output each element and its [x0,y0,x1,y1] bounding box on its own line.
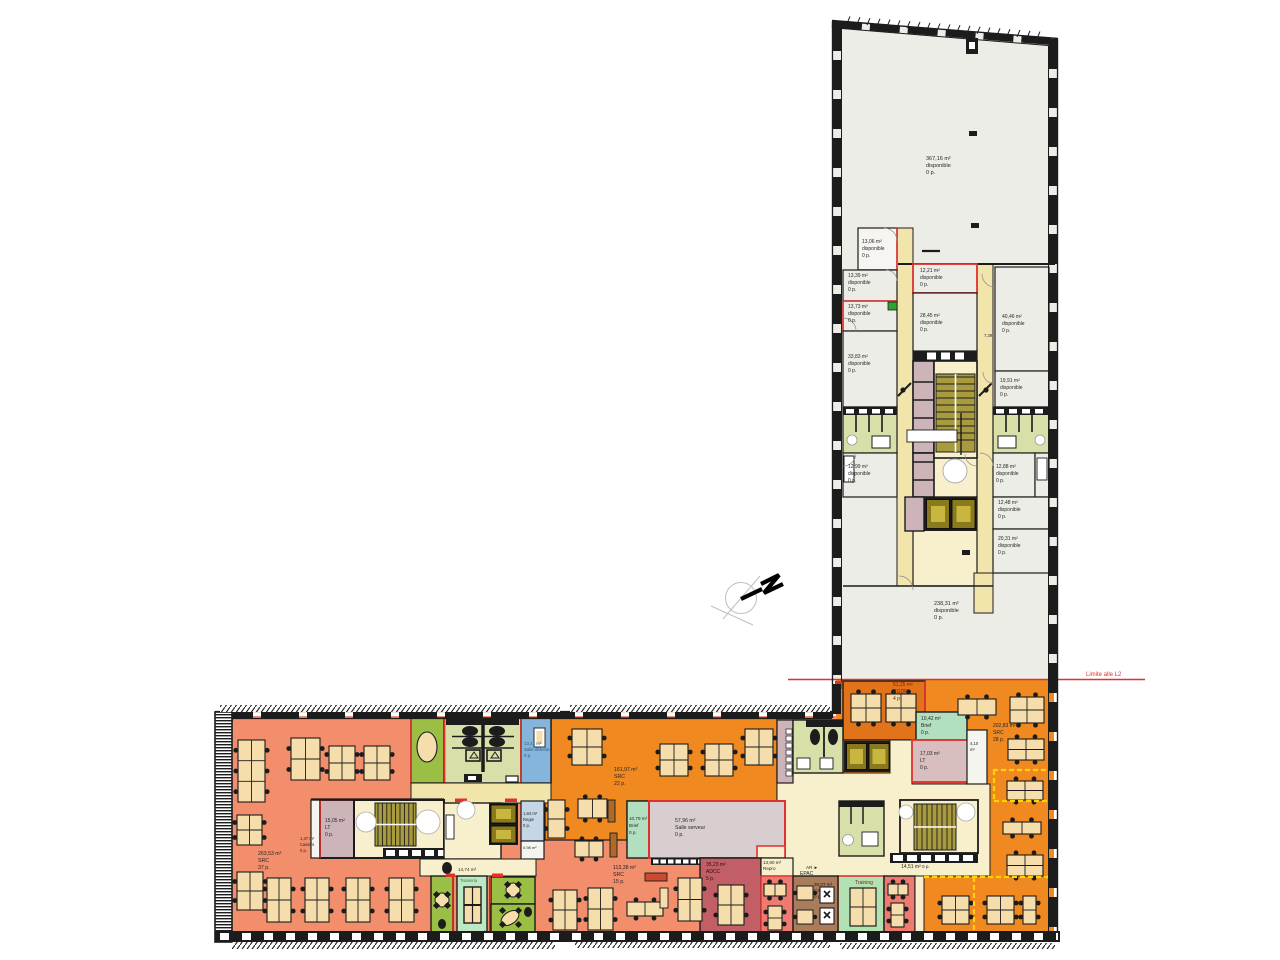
svg-text:263,53 m²: 263,53 m² [258,851,282,857]
svg-text:0 p.: 0 p. [300,848,307,853]
svg-text:Salle serveur: Salle serveur [675,825,706,831]
svg-text:13,73 m²: 13,73 m² [848,304,868,310]
svg-text:disponible: disponible [926,163,951,169]
svg-text:14,51 m²: 14,51 m² [901,864,921,870]
svg-text:15,05 m²: 15,05 m² [325,818,345,824]
svg-text:0 p.: 0 p. [920,765,928,771]
svg-text:1,84 m²: 1,84 m² [523,811,538,816]
svg-text:disponible: disponible [996,471,1019,477]
svg-text:367,16 m²: 367,16 m² [926,156,951,162]
svg-text:0,98 m²: 0,98 m² [523,845,537,850]
svg-text:Tisaneria: Tisaneria [460,878,478,883]
svg-text:disponible: disponible [848,471,871,477]
svg-text:33,83 m²: 33,83 m² [848,354,868,360]
svg-text:Limite alle L2: Limite alle L2 [1086,672,1122,678]
svg-text:Salle détente: Salle détente [524,747,550,752]
svg-text:28,45 m²: 28,45 m² [920,313,940,319]
svg-text:0 p.: 0 p. [926,170,936,176]
svg-text:0 p.: 0 p. [922,864,930,869]
svg-text:disponible: disponible [998,543,1021,549]
svg-text:12,21 m²: 12,21 m² [920,268,940,274]
svg-text:0 p.: 0 p. [848,478,856,484]
svg-text:LT: LT [920,758,925,764]
svg-text:0 p.: 0 p. [1000,392,1008,398]
svg-text:28 p.: 28 p. [993,737,1004,743]
svg-text:35,23 m²: 35,23 m² [706,862,726,868]
svg-text:13,90 m²: 13,90 m² [763,860,782,865]
svg-text:0 p.: 0 p. [629,830,637,835]
svg-text:13,06 m²: 13,06 m² [862,239,882,245]
svg-text:m²: m² [970,747,975,752]
svg-text:12,99 m²: 12,99 m² [848,464,868,470]
svg-text:0 p.: 0 p. [848,287,856,293]
svg-text:0 p.: 0 p. [921,730,929,736]
svg-text:0 p.: 0 p. [523,823,530,828]
svg-text:SRC: SRC [993,730,1004,736]
svg-text:238,31 m²: 238,31 m² [934,601,959,607]
svg-text:LT: LT [325,825,330,831]
svg-text:14,74 m²: 14,74 m² [458,867,477,872]
svg-text:4,10: 4,10 [970,741,979,746]
svg-text:10,79 m²: 10,79 m² [629,816,648,821]
svg-text:SRC: SRC [614,774,625,780]
svg-text:Repro: Repro [763,866,776,871]
svg-text:13,39 m²: 13,39 m² [848,273,868,279]
svg-text:17,03 m²: 17,03 m² [920,751,940,757]
svg-text:SRC: SRC [613,872,624,878]
svg-text:0 p.: 0 p. [1002,328,1010,334]
svg-text:disponible: disponible [934,608,959,614]
svg-text:disponible: disponible [1000,385,1023,391]
svg-text:22 p.: 22 p. [614,781,626,787]
svg-text:20,31 m²: 20,31 m² [998,536,1018,542]
svg-text:37 p.: 37 p. [258,865,270,871]
svg-text:SRC: SRC [258,858,269,864]
svg-text:1,37 m²: 1,37 m² [300,836,315,841]
svg-text:12,88 m²: 12,88 m² [996,464,1016,470]
svg-text:30,07 m²: 30,07 m² [814,882,833,887]
svg-text:13,41 m²: 13,41 m² [524,741,542,746]
svg-text:0 p.: 0 p. [998,514,1006,520]
svg-text:0 p.: 0 p. [848,318,856,324]
svg-text:0 p.: 0 p. [848,368,856,374]
svg-text:Brief: Brief [629,823,639,828]
svg-text:0 p.: 0 p. [998,550,1006,556]
svg-text:0 p.: 0 p. [920,327,928,333]
svg-text:disponible: disponible [1002,321,1025,327]
svg-text:ADCC: ADCC [706,869,721,875]
svg-text:12,48 m²: 12,48 m² [998,500,1018,506]
svg-text:0 p.: 0 p. [920,282,928,288]
svg-text:51,25 m²: 51,25 m² [893,682,913,688]
svg-text:disponible: disponible [920,320,943,326]
svg-text:4 p.: 4 p. [893,696,901,702]
svg-text:113,38 m²: 113,38 m² [613,865,636,871]
svg-text:0 p.: 0 p. [996,478,1004,484]
svg-text:202,83 m²: 202,83 m² [993,723,1016,729]
svg-text:disponible: disponible [848,361,871,367]
svg-text:disponible: disponible [862,246,885,252]
svg-text:0 p.: 0 p. [524,753,531,758]
svg-text:Training: Training [855,880,873,886]
svg-text:7,39: 7,39 [984,333,993,338]
svg-text:57,96 m²: 57,96 m² [675,818,696,824]
svg-text:disponible: disponible [920,275,943,281]
svg-text:5 p.: 5 p. [706,876,714,882]
svg-text:161,97 m²: 161,97 m² [614,767,638,773]
svg-text:AR ►: AR ► [806,865,818,870]
svg-text:0 p.: 0 p. [325,832,333,838]
svg-text:10,42 m²: 10,42 m² [921,716,941,722]
svg-text:disponible: disponible [848,311,871,317]
svg-text:0 p.: 0 p. [862,253,870,259]
svg-text:0 p.: 0 p. [934,615,944,621]
svg-text:0 p.: 0 p. [675,832,684,838]
svg-text:Regie: Regie [523,817,535,822]
svg-text:Casiers: Casiers [300,842,314,847]
svg-text:19,91 m²: 19,91 m² [1000,378,1020,384]
svg-text:disponible: disponible [998,507,1021,513]
svg-text:Brief: Brief [921,723,932,729]
svg-text:15 p.: 15 p. [613,879,625,885]
svg-text:40,46 m²: 40,46 m² [1002,314,1022,320]
svg-text:disponible: disponible [848,280,871,286]
svg-text:RGDF: RGDF [893,689,907,695]
